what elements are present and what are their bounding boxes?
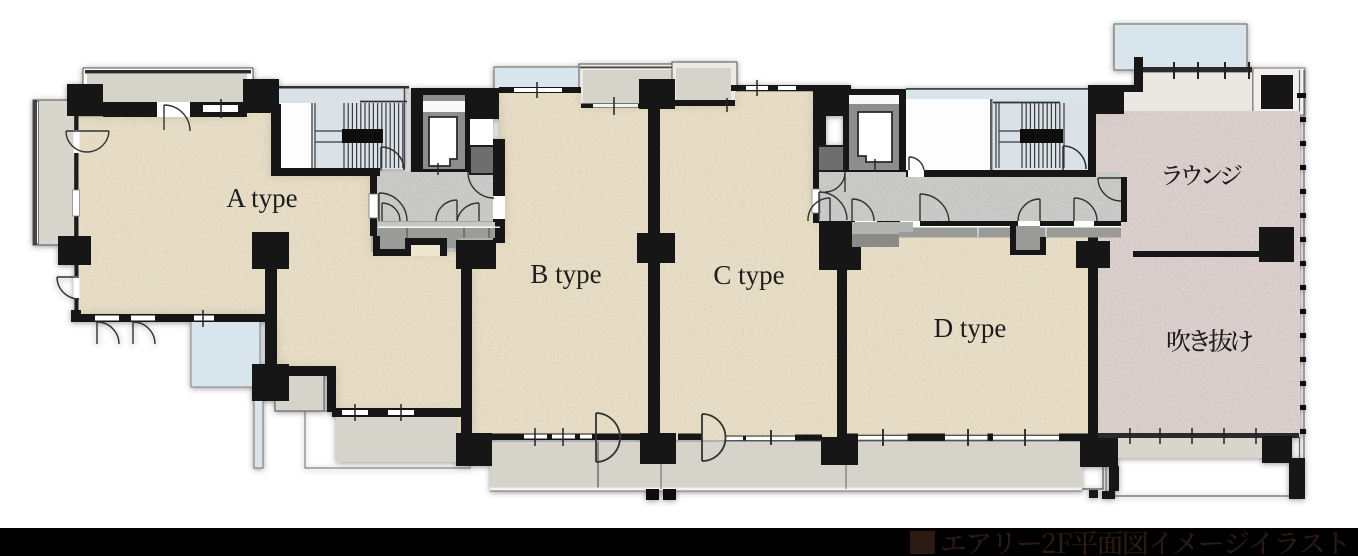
svg-text:B type: B type (530, 259, 601, 289)
svg-text:A type: A type (226, 183, 297, 213)
svg-text:D type: D type (934, 313, 1007, 343)
svg-text:C type: C type (713, 260, 784, 290)
